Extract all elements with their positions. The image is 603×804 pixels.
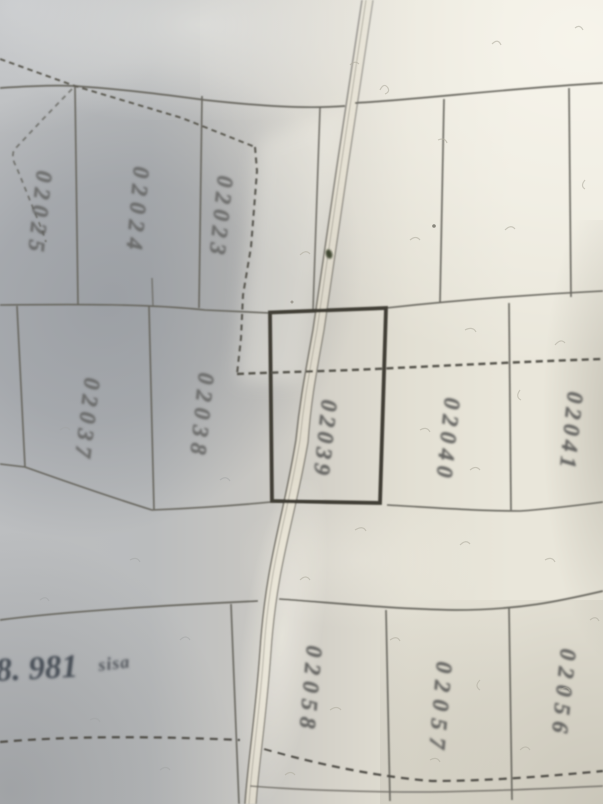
svg-text:sisa: sisa: [96, 651, 131, 675]
svg-text:8. 981: 8. 981: [0, 649, 79, 689]
